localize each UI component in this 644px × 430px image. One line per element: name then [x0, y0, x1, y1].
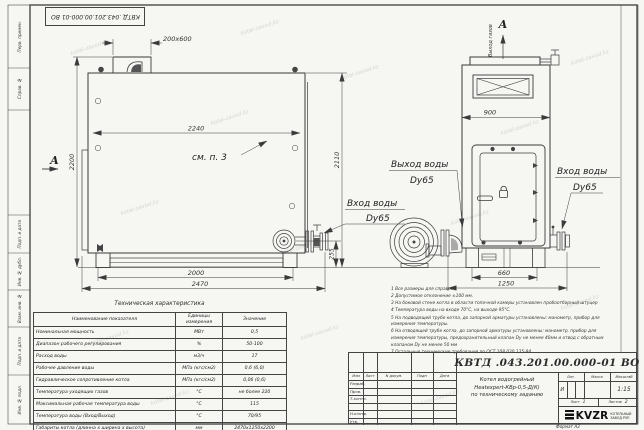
- table-row: Гидравлическое сопротивление котлаМПа (к…: [34, 375, 287, 387]
- note-line: 3 На боковой стене котла в области топоч…: [391, 301, 618, 308]
- water-outlet-dn: Dy65: [410, 176, 434, 186]
- margin-podp-data-1: Подп. и дата: [9, 215, 29, 253]
- tb-mass-header: Масса: [584, 373, 610, 381]
- param-value: 0,5: [223, 327, 287, 339]
- param-name: Расход воды: [34, 351, 176, 363]
- kvzr-logo-text: KVZR: [576, 410, 609, 422]
- boiler-front-view: [426, 50, 570, 268]
- param-unit: мм: [176, 423, 223, 430]
- tb-lit-value: И: [558, 381, 567, 398]
- table-row: Максимальная рабочая температура воды°С1…: [34, 399, 287, 411]
- water-inlet-right-label: Вход воды: [557, 167, 607, 177]
- tech-table-header: Наименование показателя: [34, 313, 176, 327]
- dim-660: 660: [498, 269, 510, 277]
- param-unit: МПа (кгс/см2): [176, 375, 223, 387]
- tb-sheet: Лист 1: [558, 398, 598, 406]
- see-note-label: см. п. 3: [192, 153, 227, 163]
- param-name: Диапазон рабочего регулирования: [34, 339, 176, 351]
- top-stamp: КВТД .043.201.00.000-01 ВО: [45, 7, 145, 26]
- param-unit: °С: [176, 399, 223, 411]
- table-row: Диапазон рабочего регулирования%50-100: [34, 339, 287, 351]
- tb-sheet-label: Лист: [571, 400, 580, 404]
- note-line: 4 Температура воды на входе 70°С, на вых…: [391, 308, 618, 315]
- company-name-line1: КОТЕЛЬНЫЙ: [610, 412, 631, 416]
- param-name: Габариты котла (длинна х ширина х высота…: [34, 423, 176, 430]
- tb-col-podp: Подп: [411, 372, 433, 380]
- param-unit: °С: [176, 411, 223, 423]
- tb-col-dokum: N докум.: [377, 372, 411, 380]
- company-name-line2: ЗАВОД РЭП: [610, 416, 631, 420]
- document-number: КВТД .043.201.00.000-01 ВО: [456, 353, 638, 373]
- table-row: Температура воды (Вход/Выход)°С70/95: [34, 411, 287, 423]
- water-inlet-mid-label: Вход воды: [347, 199, 397, 209]
- dim-2200: 2200: [68, 154, 76, 171]
- param-name: Гидравлическое сопротивление котла: [34, 375, 176, 387]
- param-value: 70/95: [223, 411, 287, 423]
- note-line: 5 На подводящей трубе котла, до запорной…: [391, 316, 618, 329]
- water-inlet-right-dn: Dy65: [573, 183, 597, 193]
- margin-inv-podl: Инв. № подл.: [9, 375, 29, 424]
- note-line: 1 Все размеры для справок: [391, 287, 618, 294]
- param-value: 17: [223, 351, 287, 363]
- param-value: 2470х1250х2200: [223, 423, 287, 430]
- tb-row-utv: Утв.: [350, 418, 377, 426]
- tb-row-nkontr: Н.контр.: [350, 410, 377, 418]
- tb-sheets: Листов 2: [598, 398, 638, 406]
- tech-table: Наименование показателя Единицы измерени…: [33, 312, 286, 430]
- tb-lit-header: Лит.: [558, 373, 584, 381]
- param-value: 0,06 (0,6): [223, 375, 287, 387]
- margin-label-text: Подп. и дата: [17, 220, 22, 249]
- product-name-line2: Heatexpert-КВр-0,5-Д(К): [456, 385, 558, 393]
- tb-col-list: Лист: [363, 372, 377, 380]
- table-row: Рабочее давление водыМПа (кгс/см2)0,6 (6…: [34, 363, 287, 375]
- param-name: Температура воды (Вход/Выход): [34, 411, 176, 423]
- param-name: Рабочее давление воды: [34, 363, 176, 375]
- param-name: Температура уходящих газов: [34, 387, 176, 399]
- dim-2000: 2000: [188, 269, 205, 277]
- tech-table-title: Техническая характеристика: [33, 301, 286, 307]
- company-name: КОТЕЛЬНЫЙ ЗАВОД РЭП: [610, 412, 631, 420]
- kvzr-logo-icon: [565, 410, 574, 421]
- param-unit: °С: [176, 387, 223, 399]
- tb-row-razrab: Разраб.: [350, 380, 377, 388]
- technical-notes: 1 Все размеры для справок 2 Допустимое о…: [391, 287, 618, 357]
- tb-sheets-label: Листов: [608, 400, 621, 404]
- margin-inv-dubl: Инв. № дубл.: [9, 253, 29, 290]
- table-row: Габариты котла (длинна х ширина х высота…: [34, 423, 287, 430]
- param-unit: МВт: [176, 327, 223, 339]
- drawing-sheet: kotel-zavod.kz kotel-zavod.kz kotel-zavo…: [0, 0, 644, 430]
- tb-sheets-value: 2: [625, 400, 628, 405]
- dim-flue: 200x600: [163, 35, 192, 43]
- margin-label-text: Инв. № подл.: [17, 385, 22, 415]
- section-letter-top: А: [498, 18, 508, 31]
- tb-sheet-value: 1: [583, 400, 586, 405]
- margin-podp-data-2: Подп. и дата: [9, 327, 29, 375]
- tech-table-header-row: Наименование показателя Единицы измерени…: [34, 313, 287, 327]
- tb-col-data: Дата: [433, 372, 456, 380]
- param-value: 50-100: [223, 339, 287, 351]
- param-unit: м3/ч: [176, 351, 223, 363]
- tb-row-prov: Пров.: [350, 388, 377, 396]
- dim-2240: 2240: [188, 125, 205, 133]
- gas-outlet-label: Выход газов: [488, 24, 494, 57]
- param-unit: МПа (кгс/см2): [176, 363, 223, 375]
- tb-row-tkontr: Т.контр.: [350, 395, 377, 403]
- title-block: Изм Лист N докум. Подп Дата Разраб. Пров…: [348, 352, 637, 424]
- table-row: Расход водым3/ч17: [34, 351, 287, 363]
- tb-col-izm: Изм: [349, 372, 363, 380]
- blower-fan: [390, 218, 438, 268]
- product-name-line1: Котел водогрейный: [456, 377, 558, 385]
- tech-table-header: Единицы измерения: [176, 313, 223, 327]
- param-name: Максимальная рабочая температура воды: [34, 399, 176, 411]
- tech-table-header: Значение: [223, 313, 287, 327]
- table-row: Температура уходящих газов°Сне более 220: [34, 387, 287, 399]
- product-name-line3: по техническому заданию: [456, 392, 558, 400]
- water-outlet-label: Выход воды: [391, 160, 448, 170]
- dim-2470: 2470: [192, 280, 209, 288]
- table-row: Номинальная мощностьМВт0,5: [34, 327, 287, 339]
- tb-scale-value: 1:15: [610, 381, 638, 398]
- margin-label-text: Инв. № дубл.: [17, 257, 22, 286]
- company-logo: KVZR КОТЕЛЬНЫЙ ЗАВОД РЭП: [558, 406, 638, 425]
- dim-255: 255: [329, 248, 336, 260]
- dim-2110: 2110: [333, 152, 341, 169]
- param-value: 115: [223, 399, 287, 411]
- tb-scale-header: Масштаб: [610, 373, 638, 381]
- product-name: Котел водогрейный Heatexpert-КВр-0,5-Д(К…: [456, 373, 558, 425]
- padlock-icon: [500, 186, 508, 197]
- param-value: не более 220: [223, 387, 287, 399]
- margin-sprav-no: Справ. №: [9, 68, 29, 110]
- format-label: Формат А3: [556, 424, 636, 429]
- margin-label-text: Справ. №: [17, 78, 22, 99]
- param-value: 0,6 (6,0): [223, 363, 287, 375]
- margin-vzam-inv: Взам. инв. №: [9, 290, 29, 327]
- param-unit: %: [176, 339, 223, 351]
- margin-label-text: Подп. и дата: [17, 337, 22, 366]
- note-line: 6 На отводящей трубе котла, до запорной …: [391, 329, 618, 349]
- margin-perv-primen: Перв. примен.: [9, 6, 29, 68]
- dim-900: 900: [484, 109, 496, 117]
- section-letter-left: А: [49, 154, 59, 167]
- note-line: 2 Допустимое отклонение ±100 мм.: [391, 294, 618, 301]
- water-inlet-mid-dn: Dy65: [366, 214, 390, 224]
- margin-label-text: Перв. примен.: [17, 21, 22, 52]
- top-stamp-number: КВТД .043.201.00.000-01 ВО: [51, 13, 140, 20]
- margin-label-text: Взам. инв. №: [17, 294, 22, 323]
- param-name: Номинальная мощность: [34, 327, 176, 339]
